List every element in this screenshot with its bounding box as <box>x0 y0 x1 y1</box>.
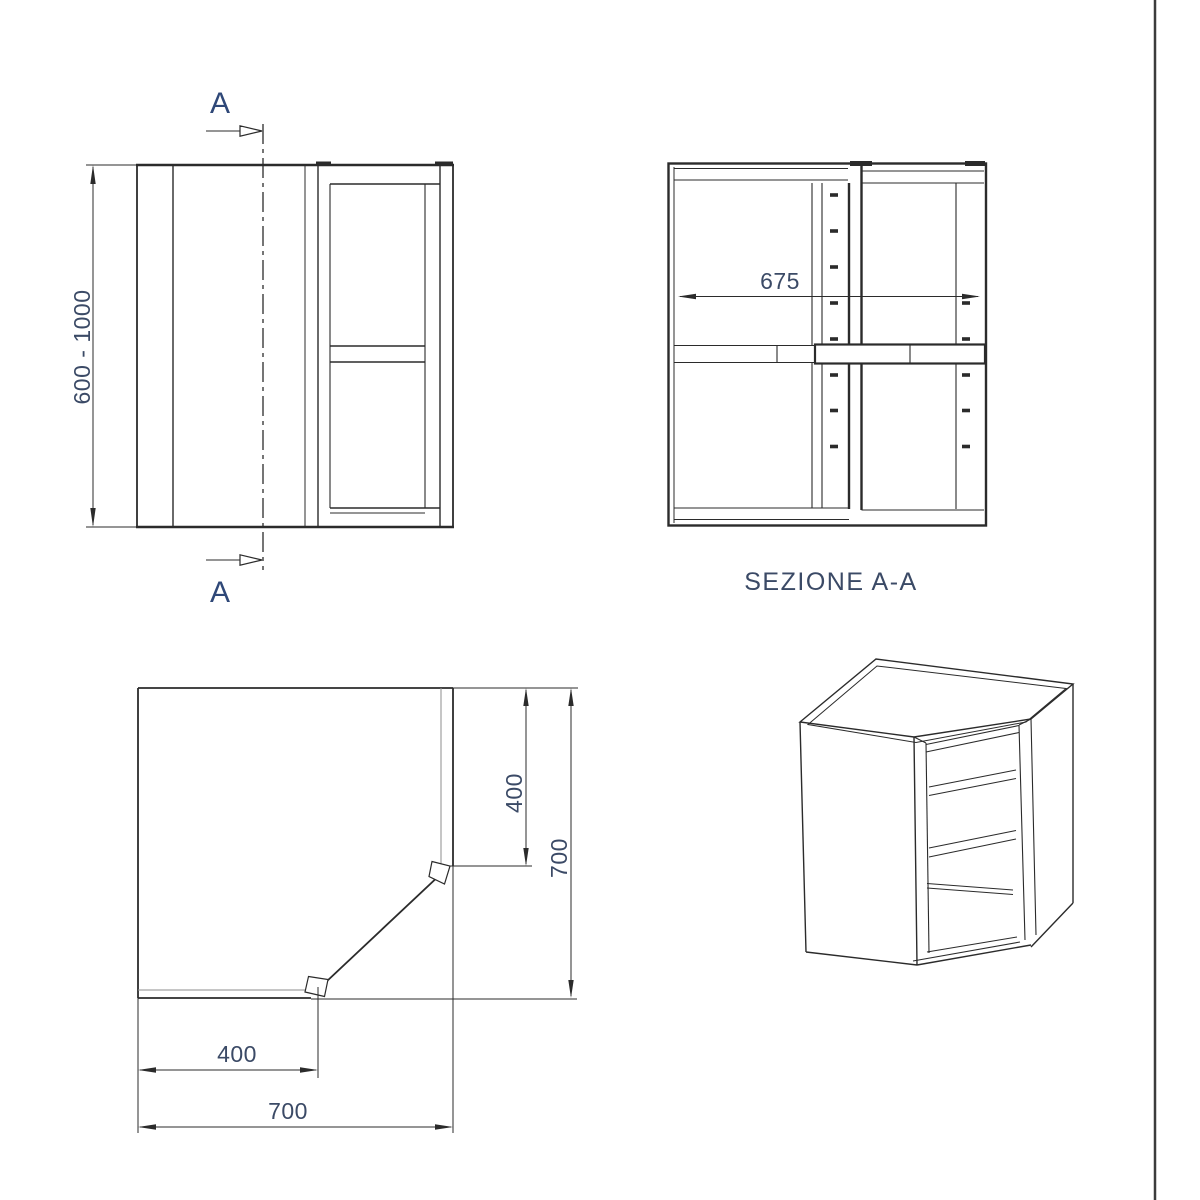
shelf-pin-holes-middle <box>830 193 838 448</box>
iso-top-face-inner <box>808 666 1066 743</box>
plan-total-depth-dim-text: 700 <box>546 838 572 878</box>
plan-door-depth-arrow-up <box>523 688 528 706</box>
front-height-dim-text: 600 - 1000 <box>69 290 95 405</box>
section-shelf-lines <box>674 346 815 363</box>
section-letter-bottom: A <box>210 576 230 609</box>
plan-total-width-arrow-left <box>138 1124 156 1129</box>
drawing-sheet: 600 - 1000 A A <box>0 0 1200 1200</box>
plan-door-depth-dim-text: 400 <box>501 773 527 813</box>
iso-front-rail <box>926 726 1019 753</box>
front-view: 600 - 1000 A A <box>69 87 454 609</box>
section-corner-post <box>849 166 862 510</box>
section-letter-top: A <box>210 87 230 120</box>
section-top-band-right <box>862 171 985 183</box>
iso-front-right-post <box>1019 719 1036 940</box>
section-width-dim-text: 675 <box>760 268 800 294</box>
front-compartment-horizontals <box>330 184 440 508</box>
iso-front-left-post-inner <box>926 743 929 953</box>
section-bottom-band <box>674 508 984 520</box>
iso-top-face-outer <box>800 659 1073 737</box>
iso-shelf-1 <box>929 770 1016 796</box>
plan-total-depth-arrow-down <box>568 980 573 998</box>
iso-floor-lines <box>927 884 1013 895</box>
section-view-title: SEZIONE A-A <box>744 568 917 596</box>
plan-total-width-arrow-right <box>435 1124 453 1129</box>
front-height-arrow-down <box>90 508 95 527</box>
iso-left-panel-edges <box>800 722 917 965</box>
front-mount-tab-left <box>316 162 331 167</box>
plan-inner-wall-lines <box>138 688 441 990</box>
plan-hinge-top <box>429 862 450 885</box>
section-view: 675 SEZIONE A-A <box>669 161 987 596</box>
section-arrow-bottom <box>240 555 262 565</box>
plan-door-diagonal <box>326 872 443 982</box>
iso-right-panel-edges <box>1031 684 1073 947</box>
plan-total-width-dim-text: 700 <box>268 1098 308 1124</box>
plan-door-width-arrow-right <box>300 1067 318 1072</box>
plan-extension-lines <box>138 688 578 1133</box>
section-arrow-top <box>240 126 262 136</box>
plan-outline <box>138 688 453 998</box>
plan-door-width-dim-text: 400 <box>217 1041 257 1067</box>
section-shelf-cut-block <box>815 345 985 364</box>
section-width-arrow-left <box>678 294 696 299</box>
section-mount-tab-right <box>965 161 985 166</box>
front-mount-tab-right <box>435 162 453 167</box>
front-height-arrow-up <box>90 165 95 184</box>
plan-door-width-arrow-left <box>138 1067 156 1072</box>
technical-drawing-canvas: 600 - 1000 A A <box>0 0 1200 1200</box>
iso-shelf-2 <box>929 831 1016 858</box>
section-mount-tab-middle <box>850 161 872 166</box>
plan-door-depth-arrow-down <box>523 848 528 866</box>
plan-hinge-bottom <box>305 977 328 997</box>
iso-bottom-outer <box>917 945 1031 965</box>
isometric-view <box>800 659 1073 965</box>
plan-total-depth-arrow-up <box>568 688 573 706</box>
section-arrow-lines <box>206 131 240 560</box>
section-width-arrow-right <box>962 294 980 299</box>
section-top-band-left <box>674 169 848 181</box>
plan-view: 400 700 400 700 <box>138 688 578 1133</box>
shelf-pin-holes-right <box>962 301 970 448</box>
